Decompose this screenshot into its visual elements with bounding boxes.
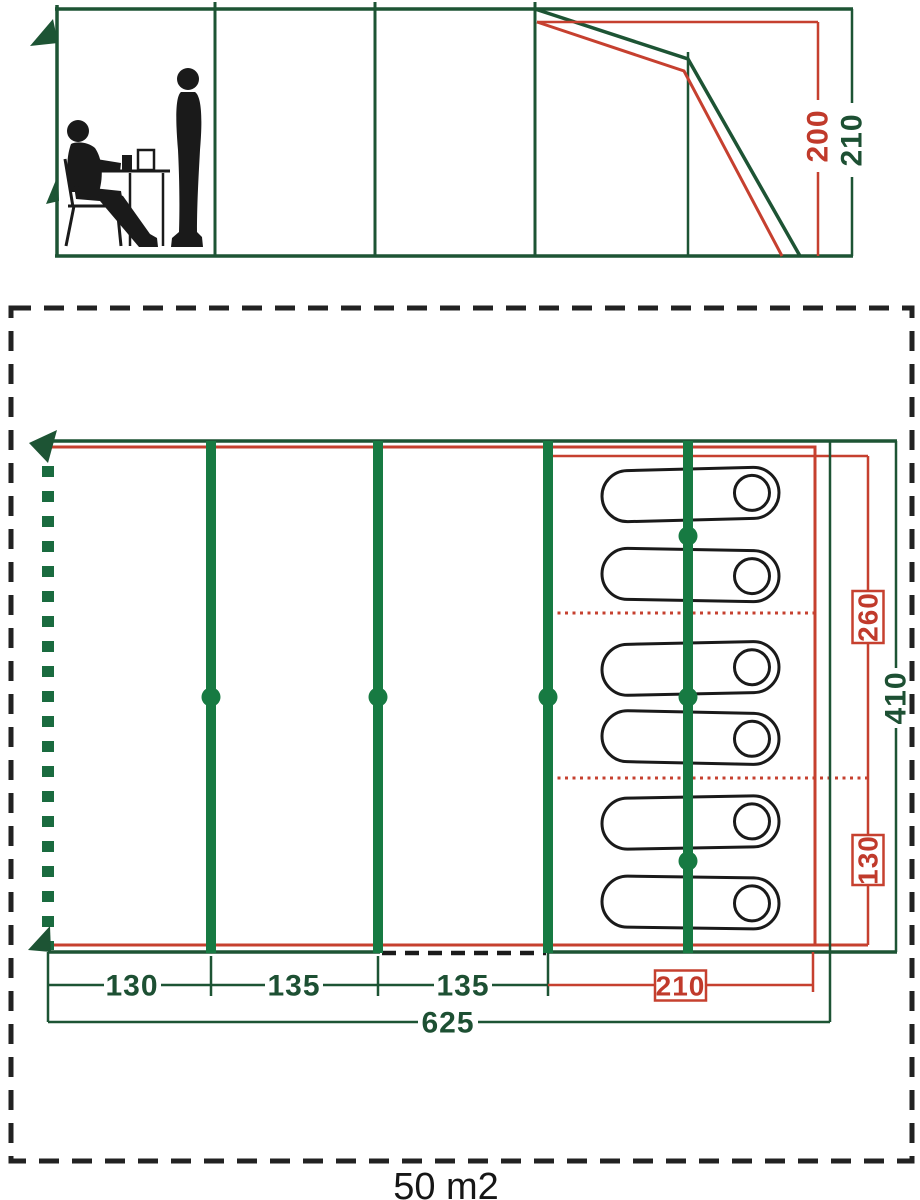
pole-hub-dot — [202, 688, 221, 707]
dim-label-130: 130 — [105, 970, 158, 1003]
cup-icon — [138, 150, 154, 170]
dim-label-200: 200 — [802, 109, 835, 162]
elevation-rear-slope-outer — [535, 9, 800, 256]
dim-label-410: 410 — [880, 671, 913, 724]
dim-label-210-bottom: 210 — [656, 971, 706, 1002]
standing-person-head — [177, 68, 199, 90]
dim-label-260: 260 — [853, 592, 884, 642]
guy-flag-icon — [46, 175, 59, 204]
floor-area-label: 50 m2 — [393, 1166, 499, 1200]
dim-label-135a: 135 — [267, 970, 320, 1003]
dim-label-210: 210 — [836, 113, 869, 166]
elevation-rear-slope-inner — [537, 22, 782, 256]
bottom-dimensions: 130 135 135 210 625 — [48, 952, 830, 1040]
people-pictogram — [65, 68, 203, 247]
guy-flag-icon — [30, 19, 58, 46]
cup-icon — [122, 155, 132, 170]
dim-label-135b: 135 — [436, 970, 489, 1003]
pole-hub-dot — [679, 852, 698, 871]
dim-label-130-right: 130 — [853, 835, 884, 885]
tent-diagram-page: 200 210 — [0, 0, 920, 1200]
inner-tent-outline — [48, 447, 868, 945]
elevation-view: 200 210 — [30, 2, 869, 256]
seated-person-head — [67, 120, 89, 142]
pole-hub-dot — [369, 688, 388, 707]
pole-hub-dot — [539, 688, 558, 707]
right-dimensions: 260 130 410 — [853, 441, 913, 952]
pole-hub-dot — [679, 688, 698, 707]
dim-label-625: 625 — [421, 1007, 474, 1040]
tent-diagram: 200 210 — [0, 0, 920, 1200]
floorplan-view: 260 130 410 130 135 135 210 625 50 m — [11, 308, 913, 1200]
corner-flag-icon — [28, 926, 51, 952]
pole-hub-dot — [679, 527, 698, 546]
standing-person-body — [171, 92, 203, 247]
